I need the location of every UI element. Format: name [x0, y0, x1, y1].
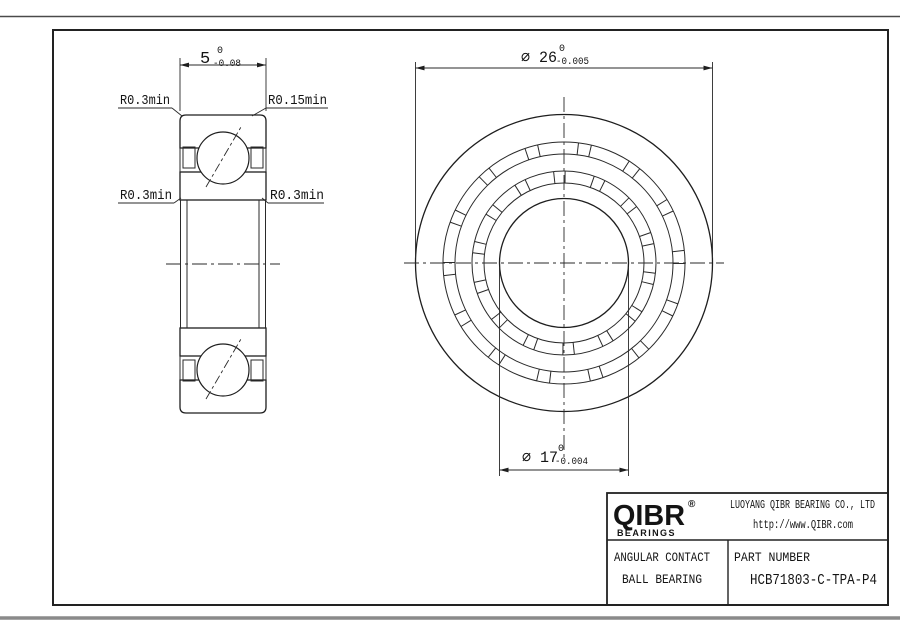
dim-od-value: ⌀ 26 [521, 49, 557, 67]
part-number-label: PART NUMBER [734, 550, 810, 565]
registered-mark-icon: ® [688, 499, 696, 510]
title-block: QIBR ® BEARINGS LUOYANG QIBR BEARING CO.… [607, 493, 888, 605]
dim-width-tol-lower: -0.08 [213, 59, 241, 70]
dim-width-tol-upper: 0 [217, 46, 223, 57]
drawing-canvas: 5 0 -0.08 R0.3min R0.15min R0.3min R0.3m… [0, 0, 900, 636]
part-number-value: HCB71803-C-TPA-P4 [750, 573, 877, 589]
front-view: ⌀ 26 0 -0.005 ⌀ 17 0 -0.004 [404, 44, 724, 476]
company-name: LUOYANG QIBR BEARING CO., LTD [730, 499, 875, 512]
radius-label-top-left: R0.3min [120, 94, 170, 109]
dim-bore-tol-upper: 0 [558, 444, 564, 455]
product-type-line2: BALL BEARING [622, 572, 702, 587]
dim-od-tol-lower: -0.005 [556, 57, 589, 68]
drawing-sheet: 5 0 -0.08 R0.3min R0.15min R0.3min R0.3m… [0, 0, 900, 636]
cage-block [251, 360, 263, 381]
section-view: 5 0 -0.08 R0.3min R0.15min R0.3min R0.3m… [118, 46, 328, 413]
ball-top [197, 132, 249, 184]
product-type-line1: ANGULAR CONTACT [614, 550, 710, 565]
cage-block [183, 147, 195, 168]
dim-od-tol-upper: 0 [559, 44, 565, 55]
logo-sub-text: BEARINGS [617, 528, 677, 538]
company-logo: QIBR ® BEARINGS [613, 499, 696, 538]
dim-width-value: 5 [200, 50, 210, 69]
radius-label-mid-right: R0.3min [270, 189, 324, 204]
width-dimension: 5 0 -0.08 [180, 46, 266, 111]
company-website: http://www.QIBR.com [753, 519, 853, 532]
cage-block [251, 147, 263, 168]
cage-block [183, 360, 195, 381]
dim-bore-value: ⌀ 17 [522, 449, 558, 467]
radius-label-mid-left: R0.3min [120, 189, 172, 204]
radius-label-top-right: R0.15min [268, 94, 327, 109]
dim-bore-tol-lower: -0.004 [555, 457, 588, 468]
ball-bottom [197, 344, 249, 396]
